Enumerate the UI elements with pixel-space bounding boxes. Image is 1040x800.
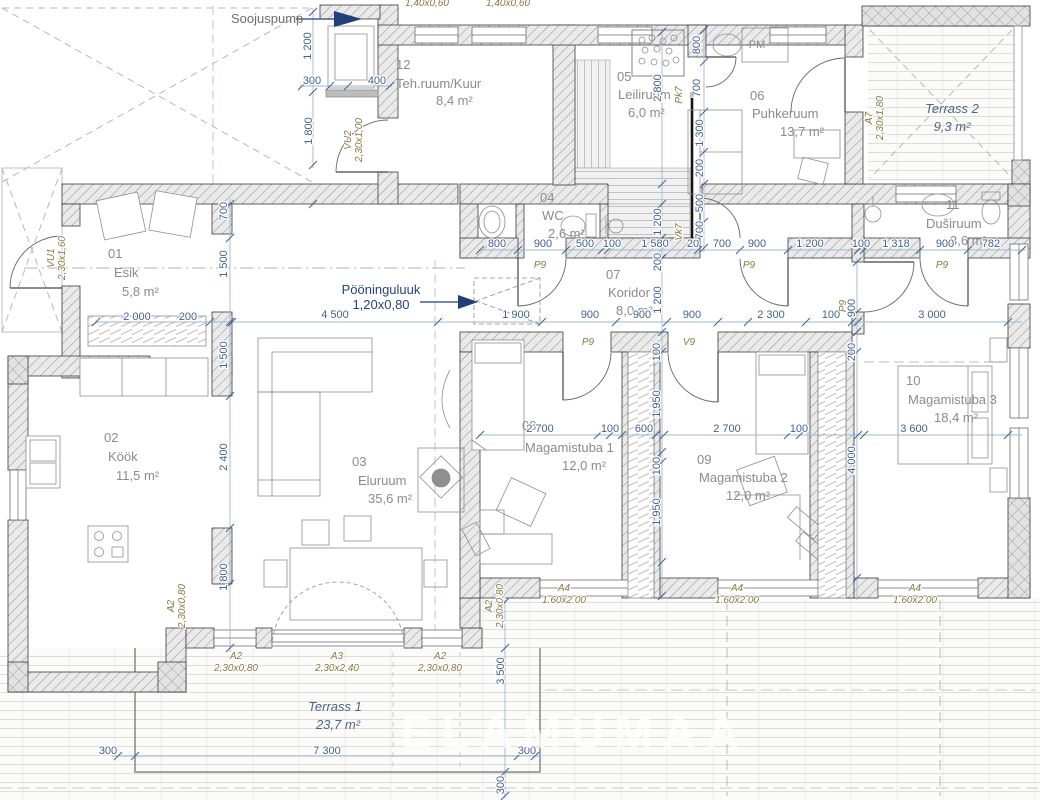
watermark: ELAMUMAA (401, 706, 749, 758)
room-name-11: Duširuum (926, 216, 982, 231)
terrace-area-2: 9,3 m² (934, 119, 972, 134)
room-name-02: Köök (108, 449, 138, 464)
annotation-attic-hatch: Pööninguluuk (342, 282, 421, 297)
dimension-text: 700 (713, 238, 731, 250)
dimension-text: 1 300 (694, 119, 706, 147)
room-number-12: 12 (396, 57, 410, 72)
dimension-text: 7 300 (313, 745, 341, 757)
terrace-name-1: Terrass 1 (308, 699, 362, 714)
dimension-text: 200 (652, 253, 664, 271)
dimension-text: 1 200 (652, 286, 664, 314)
opening-label: 2,30x0,80 (417, 663, 462, 674)
dimension-text: 400 (368, 75, 386, 87)
dimension-text: 700 (694, 221, 706, 239)
opening-label: 2,30x2,40 (314, 663, 359, 674)
dimension-text: 1 200 (652, 208, 664, 236)
dimension-text: 800 (488, 238, 506, 250)
dimension-text: 700 (218, 202, 230, 220)
room-number-07: 07 (606, 267, 620, 282)
terrace-area-1: 23,7 m² (315, 717, 361, 732)
opening-label: P9 (534, 260, 547, 271)
opening-label: P9 (936, 260, 949, 271)
dimension-text: 100 (651, 457, 663, 475)
dimension-text: 1 950 (651, 498, 663, 526)
room-name-12: Teh.ruum/Kuur (396, 76, 482, 91)
room-number-11: 11 (946, 197, 960, 212)
room-name-08: Magamistuba 1 (525, 440, 614, 455)
window-size-label: 1,40x0,60 (486, 0, 530, 9)
opening-label: A4 (557, 583, 571, 594)
opening-label: A2 (484, 599, 495, 613)
room-area-02: 11,5 m² (116, 468, 160, 483)
room-area-01: 5,8 m² (122, 284, 160, 299)
opening-label: P9 (582, 337, 595, 348)
opening-label: A4 (908, 583, 922, 594)
room-name-04: WC (542, 208, 564, 223)
floor-plan-canvas: 01Esik5,8 m²02Köök11,5 m²03Eluruum35,6 m… (0, 0, 1040, 800)
dimension-text: 782 (982, 238, 1000, 250)
opening-label: A2 (166, 599, 177, 613)
terrace2-edge (1014, 26, 1022, 160)
dimension-text: 900 (683, 309, 701, 321)
opening-label: V9 (683, 337, 696, 348)
opening-label: Pk7 (674, 86, 685, 104)
dimension-text: 300 (495, 776, 507, 794)
dimension-text: 900 (534, 238, 552, 250)
washing-machine-label: PM (749, 39, 766, 51)
dimension-text: 1 500 (218, 341, 230, 369)
opening-label: 2,30x1,00 (354, 118, 365, 163)
dimension-text: 900 (581, 309, 599, 321)
room-area-08: 12,0 m² (562, 458, 607, 473)
dimension-text: 500 (576, 238, 594, 250)
opening-label: 2,30x0,80 (177, 584, 188, 629)
dimension-text: 100 (790, 423, 808, 435)
dimension-text: 900 (633, 309, 651, 321)
dimension-text: 1 900 (502, 309, 530, 321)
room-name-06: Puhkeruum (752, 106, 818, 121)
dimension-text: 1 200 (302, 32, 314, 60)
room-number-02: 02 (104, 430, 118, 445)
dimension-text: 1 800 (303, 117, 315, 145)
annotation-attic-hatch-size: 1,20x0,80 (352, 297, 409, 312)
room-number-06: 06 (750, 88, 764, 103)
dimension-text: 3 500 (495, 657, 507, 685)
room-name-10: Magamistuba 3 (908, 392, 997, 407)
opening-label: A7 (864, 111, 875, 125)
room-area-09: 12,0 m² (726, 488, 771, 503)
opening-label: A3 (330, 651, 344, 662)
dimension-text: 600 (635, 423, 653, 435)
dimension-text: 1 580 (641, 238, 669, 250)
opening-label: P9 (743, 260, 756, 271)
room-name-03: Eluruum (358, 473, 406, 488)
opening-label: Vk7 (674, 223, 685, 241)
dimension-text: 200 (179, 311, 197, 323)
room-number-04: 04 (540, 190, 554, 205)
dimension-text: 2 700 (713, 423, 741, 435)
opening-label: 2,30x0,80 (213, 663, 258, 674)
room-name-01: Esik (114, 265, 139, 280)
dimension-text: 4 000 (846, 446, 858, 474)
dimension-text: 900 (748, 238, 766, 250)
dimension-text: 800 (691, 36, 703, 54)
opening-label: 2,30x1,60 (57, 236, 68, 281)
dimension-text: 900 (936, 238, 954, 250)
terrace-name-2: Terrass 2 (925, 101, 979, 116)
dimension-text: 300 (99, 745, 117, 757)
room-area-12: 8,4 m² (436, 93, 474, 108)
dimension-text: 3 000 (918, 309, 946, 321)
dimension-text: 2 300 (757, 309, 785, 321)
dimension-text: 3 600 (900, 423, 928, 435)
opening-label: 1.60x2.00 (715, 595, 759, 606)
room-number-01: 01 (108, 246, 122, 261)
room-name-09: Magamistuba 2 (699, 470, 788, 485)
dimension-text: 2 700 (526, 423, 554, 435)
opening-label: 2,30x1,80 (875, 96, 886, 141)
dimension-text: 1 800 (218, 563, 230, 591)
opening-label: A2 (229, 651, 243, 662)
dimension-text: 200 (846, 343, 858, 361)
floor-plan-drawing: 01Esik5,8 m²02Köök11,5 m²03Eluruum35,6 m… (0, 0, 1040, 800)
window-size-label: 1,40x0,60 (405, 0, 449, 9)
dimension-text: 500 (694, 194, 706, 212)
opening-label: A4 (730, 583, 744, 594)
room-area-10: 18,4 m² (934, 410, 979, 425)
room-area-06: 13,7 m² (780, 124, 825, 139)
opening-label: 1.60x2.00 (893, 595, 937, 606)
room-number-03: 03 (352, 454, 366, 469)
opening-label: VU1 (46, 248, 57, 267)
dimension-text: 300 (303, 75, 321, 87)
dimension-text: 1 950 (651, 390, 663, 418)
room-name-07: Koridor (608, 285, 651, 300)
room-area-05: 6,0 m² (628, 105, 666, 120)
opening-label: A2 (433, 651, 447, 662)
dimension-text: 100 (852, 238, 870, 250)
dimension-text: 100 (651, 343, 663, 361)
opening-label: 1.60x2.00 (542, 595, 586, 606)
opening-label: VU2 (343, 130, 354, 150)
room-area-03: 35,6 m² (368, 491, 413, 506)
room-number-09: 09 (697, 452, 711, 467)
dimension-text: 2 400 (218, 443, 230, 471)
dimension-text: 1 200 (796, 238, 824, 250)
dimension-text: 100 (601, 423, 619, 435)
dimension-text: 200 (694, 159, 706, 177)
room-number-10: 10 (906, 373, 920, 388)
dimension-text: 1 318 (882, 238, 910, 250)
dimension-text: 2 000 (123, 311, 151, 323)
dimension-text: 1 500 (218, 250, 230, 278)
dimension-text: 4 500 (321, 309, 349, 321)
opening-label: 2,30x0,80 (495, 584, 506, 629)
opening-label: P9 (838, 299, 849, 312)
dimension-text: 100 (603, 238, 621, 250)
annotation-heat-pump: Soojuspump (231, 11, 303, 26)
dimension-text: 700 (691, 79, 703, 97)
dimension-text: 2 800 (652, 74, 664, 102)
room-number-05: 05 (617, 69, 631, 84)
